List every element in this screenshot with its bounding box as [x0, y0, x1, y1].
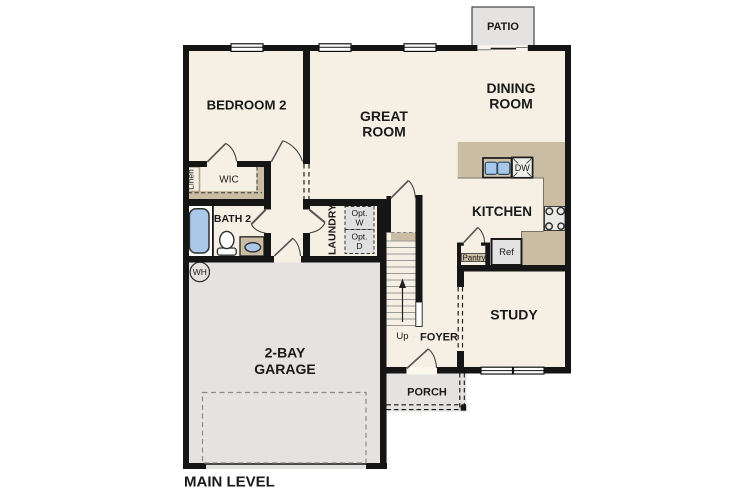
svg-text:D: D [356, 241, 362, 251]
svg-text:GREAT: GREAT [360, 108, 408, 124]
svg-text:WIC: WIC [219, 175, 238, 186]
svg-text:DINING: DINING [487, 80, 536, 96]
svg-text:STUDY: STUDY [490, 307, 538, 323]
svg-text:ROOM: ROOM [362, 124, 406, 140]
svg-text:KITCHEN: KITCHEN [472, 204, 532, 219]
svg-text:2-BAY: 2-BAY [265, 345, 306, 361]
svg-text:Opt.: Opt. [351, 232, 367, 242]
svg-text:DW: DW [515, 163, 530, 173]
svg-text:BEDROOM 2: BEDROOM 2 [207, 98, 287, 113]
svg-text:LAUNDRY: LAUNDRY [327, 204, 339, 255]
svg-text:Pantry: Pantry [462, 254, 485, 263]
svg-text:Up: Up [396, 331, 408, 342]
svg-text:GARAGE: GARAGE [254, 361, 315, 377]
svg-text:Opt.: Opt. [351, 208, 367, 218]
svg-text:BATH 2: BATH 2 [214, 213, 251, 225]
svg-text:WH: WH [193, 267, 207, 277]
svg-text:PORCH: PORCH [407, 386, 447, 398]
svg-text:PATIO: PATIO [487, 21, 519, 33]
svg-text:Ref: Ref [499, 247, 514, 258]
svg-text:FOYER: FOYER [420, 332, 458, 344]
svg-text:ROOM: ROOM [489, 96, 533, 112]
svg-text:W: W [355, 218, 363, 228]
svg-text:MAIN LEVEL: MAIN LEVEL [184, 474, 275, 491]
